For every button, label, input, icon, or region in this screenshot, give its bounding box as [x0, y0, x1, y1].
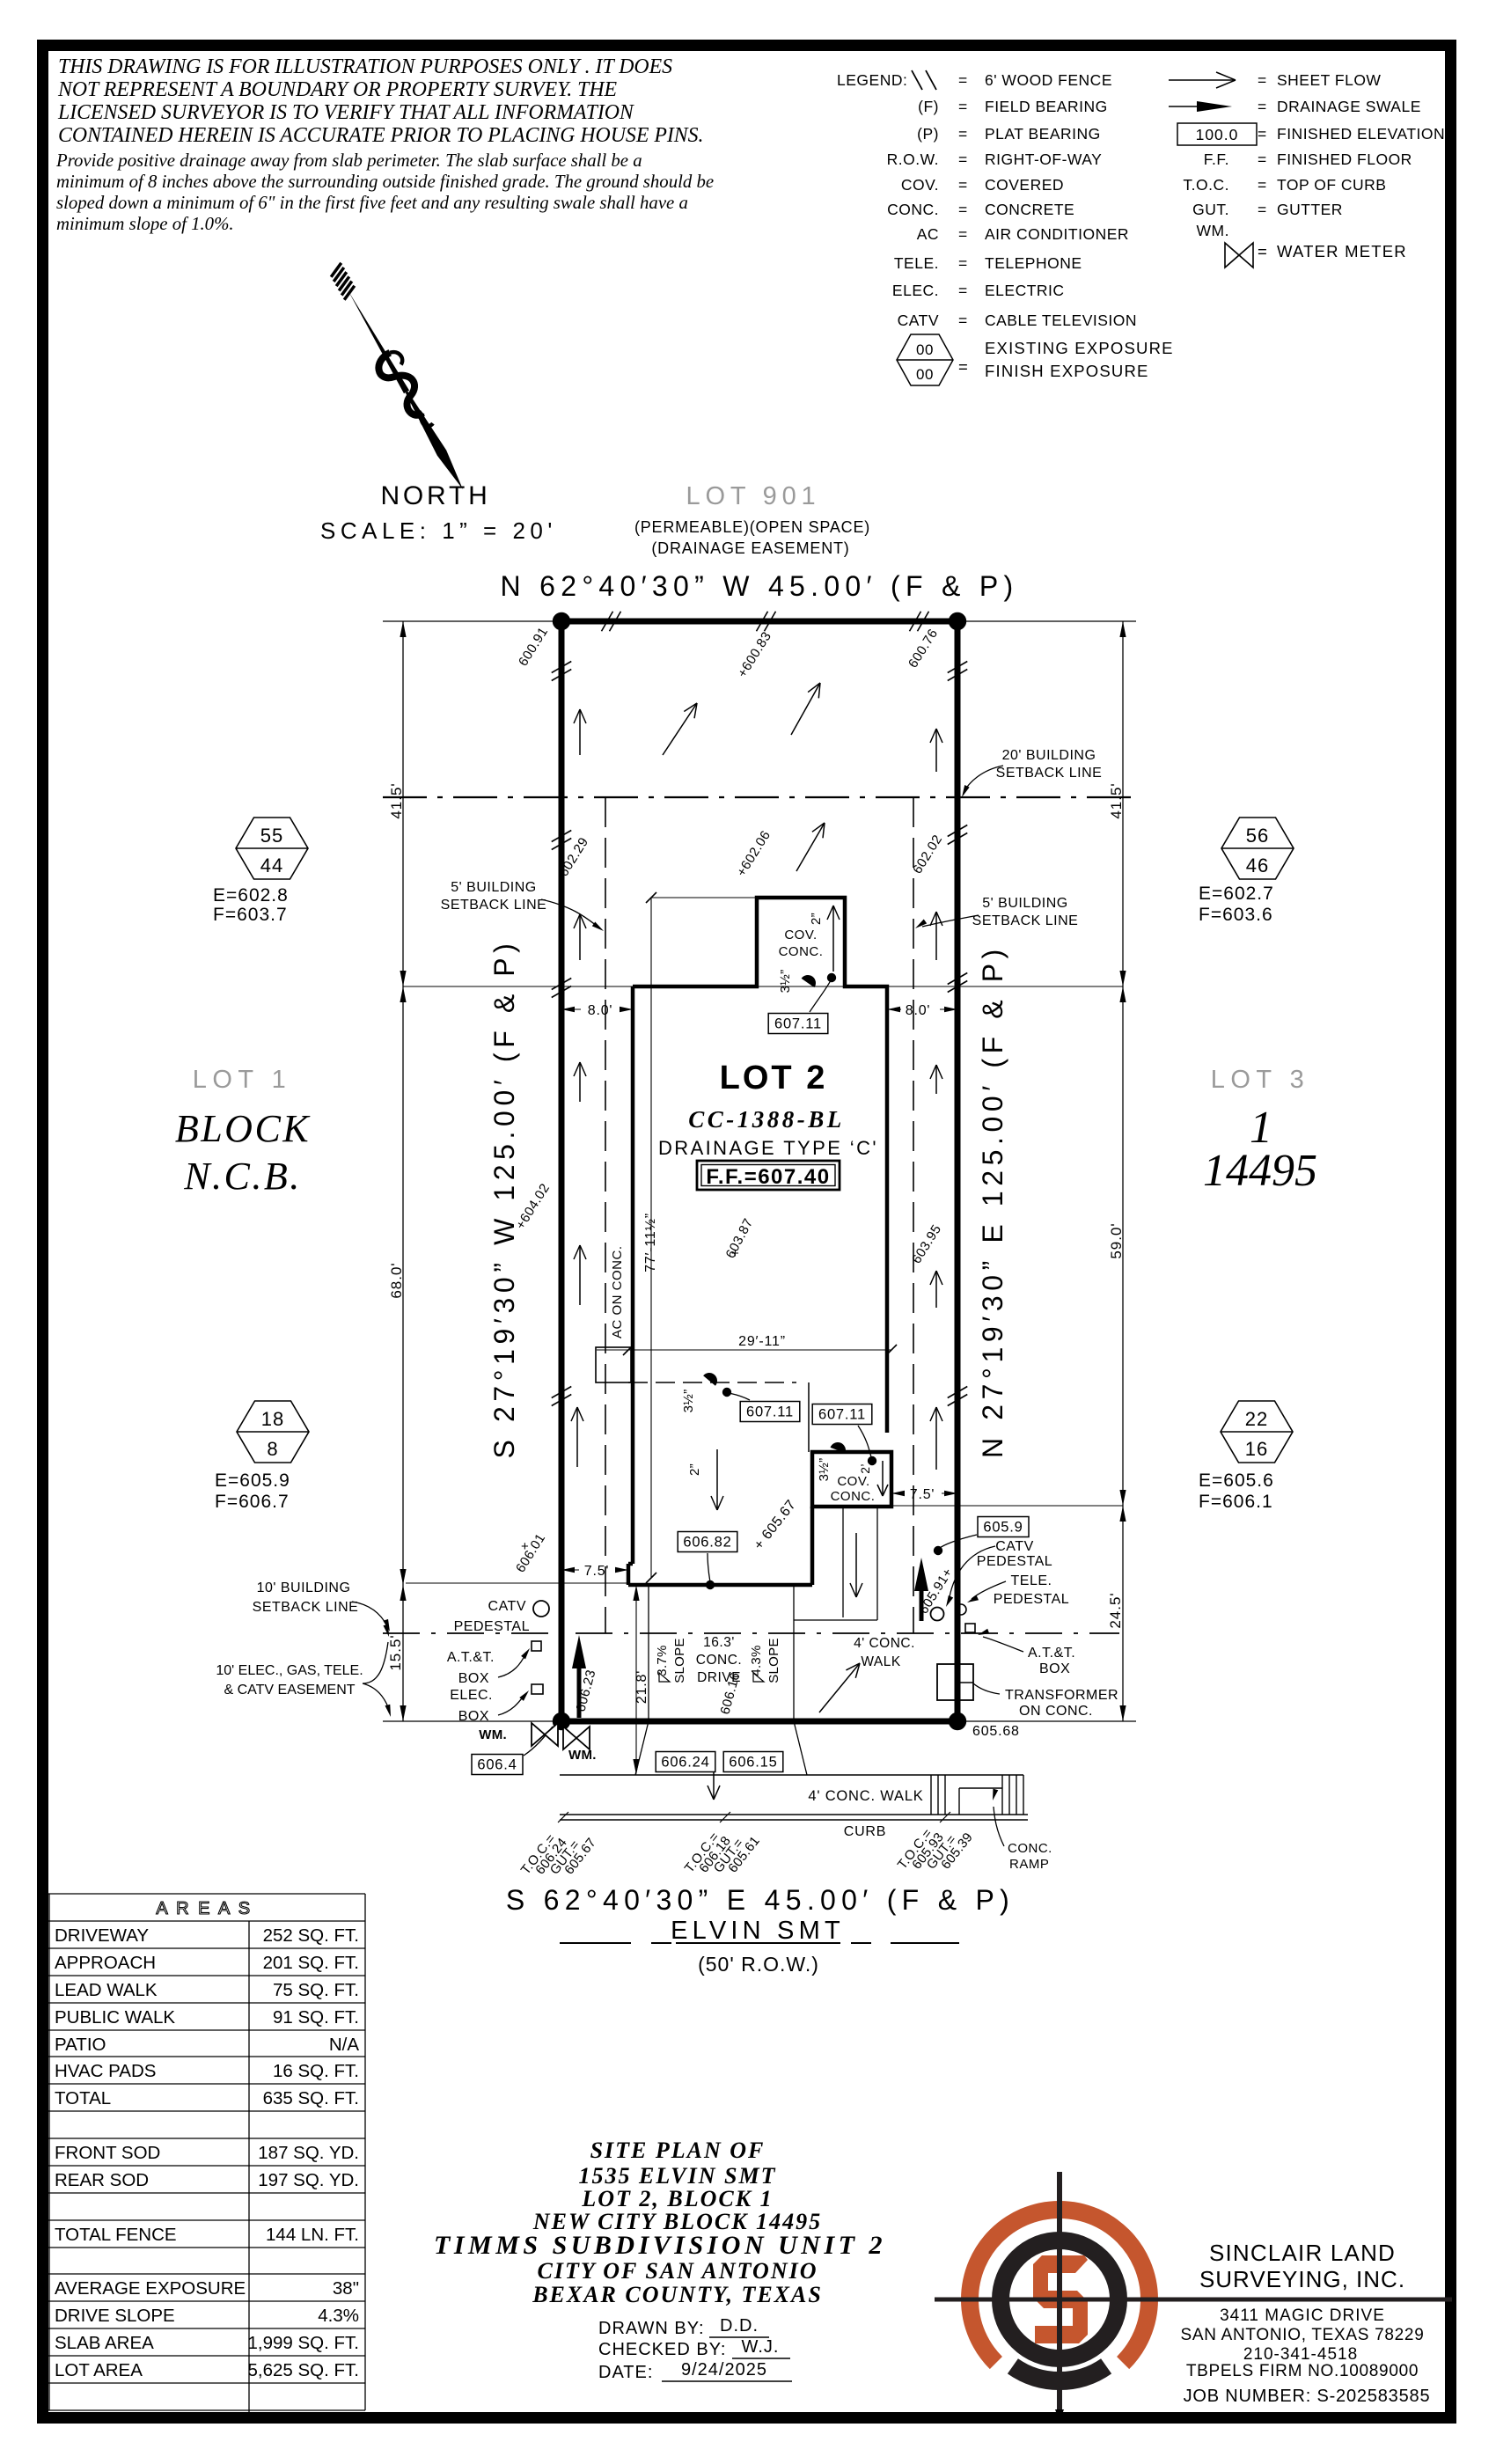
svg-text:100.0: 100.0 — [1196, 126, 1239, 143]
svg-text:41.5': 41.5' — [388, 782, 405, 818]
svg-text:CONC.: CONC. — [887, 201, 939, 218]
svg-text:S 27°19′30” W 125.00′ (F & P): S 27°19′30” W 125.00′ (F & P) — [488, 939, 520, 1459]
svg-text:14495: 14495 — [1203, 1146, 1317, 1196]
svg-text:9/24/2025: 9/24/2025 — [681, 2360, 767, 2380]
svg-text:BOX: BOX — [458, 1709, 489, 1724]
svg-text:GUT.: GUT. — [1192, 201, 1229, 218]
svg-text:(DRAINAGE EASEMENT): (DRAINAGE EASEMENT) — [651, 539, 849, 557]
svg-text:BOX: BOX — [458, 1671, 489, 1686]
svg-text:=: = — [1258, 176, 1266, 194]
svg-text:=: = — [1258, 150, 1266, 168]
svg-text:AC ON CONC.: AC ON CONC. — [610, 1245, 625, 1338]
svg-text:BOX: BOX — [1039, 1661, 1070, 1676]
svg-text:16.3': 16.3' — [703, 1635, 735, 1650]
svg-text:SLOPE: SLOPE — [766, 1638, 781, 1683]
svg-text:minimum slope of 1.0%.: minimum slope of 1.0%. — [56, 214, 234, 234]
svg-text:201 SQ. FT.: 201 SQ. FT. — [263, 1953, 359, 1973]
svg-text:=: = — [958, 125, 967, 143]
svg-text:CONC.: CONC. — [779, 944, 824, 959]
svg-text:=: = — [958, 282, 967, 299]
svg-text:sloped down a minimum of 6" in: sloped down a minimum of 6" in the first… — [56, 193, 688, 213]
svg-text:JOB NUMBER: S-202583585: JOB NUMBER: S-202583585 — [1184, 2387, 1431, 2406]
svg-text:8.0': 8.0' — [906, 1003, 931, 1018]
svg-text:=: = — [958, 312, 967, 329]
svg-text:COV.: COV. — [837, 1474, 869, 1489]
svg-text:COVERED: COVERED — [985, 176, 1064, 194]
svg-text:197 SQ. YD.: 197 SQ. YD. — [258, 2170, 359, 2190]
svg-text:SHEET FLOW: SHEET FLOW — [1277, 71, 1381, 89]
svg-text:=: = — [958, 201, 967, 218]
svg-text:TOTAL FENCE: TOTAL FENCE — [55, 2225, 177, 2245]
svg-text:607.11: 607.11 — [818, 1407, 866, 1423]
svg-text:SURVEYING, INC.: SURVEYING, INC. — [1199, 2266, 1405, 2292]
svg-text:21.8': 21.8' — [634, 1670, 649, 1704]
svg-text:605.68: 605.68 — [972, 1724, 1020, 1739]
svg-text:(F): (F) — [918, 98, 939, 115]
svg-text:TELE.: TELE. — [894, 254, 939, 272]
svg-text:3½”: 3½” — [681, 1390, 696, 1413]
svg-text:E=605.9: E=605.9 — [215, 1470, 290, 1491]
svg-text:CONTAINED HEREIN IS ACCURATE P: CONTAINED HEREIN IS ACCURATE PRIOR TO PL… — [58, 124, 704, 147]
svg-text:LEGEND:: LEGEND: — [837, 71, 907, 89]
svg-text:CONC.: CONC. — [1008, 1841, 1052, 1856]
svg-text:77′-11½”: 77′-11½” — [643, 1213, 658, 1272]
svg-text:CATV: CATV — [995, 1539, 1033, 1554]
svg-text:DRAINAGE SWALE: DRAINAGE SWALE — [1277, 98, 1421, 115]
svg-text:A.T.&T.: A.T.&T. — [1028, 1646, 1075, 1661]
svg-text:44: 44 — [260, 854, 283, 876]
svg-text:15.5': 15.5' — [387, 1634, 404, 1670]
svg-text:=: = — [1258, 201, 1266, 218]
svg-text:SITE PLAN OF: SITE PLAN OF — [590, 2138, 766, 2163]
svg-text:606.15: 606.15 — [729, 1755, 777, 1771]
svg-text:605.9: 605.9 — [983, 1520, 1023, 1536]
svg-text:DRAWN BY:: DRAWN BY: — [598, 2319, 705, 2338]
svg-text:=: = — [1258, 125, 1266, 143]
svg-text:DRIVE SLOPE: DRIVE SLOPE — [55, 2306, 175, 2326]
svg-text:144 LN. FT.: 144 LN. FT. — [266, 2225, 359, 2245]
svg-text:606.24: 606.24 — [661, 1755, 709, 1771]
svg-text:TOTAL: TOTAL — [55, 2088, 111, 2108]
svg-text:LOT 2: LOT 2 — [720, 1060, 828, 1096]
svg-text:HVAC PADS: HVAC PADS — [55, 2061, 156, 2081]
svg-text:BEXAR COUNTY, TEXAS: BEXAR COUNTY, TEXAS — [532, 2282, 823, 2307]
svg-text:WM.: WM. — [568, 1748, 597, 1763]
svg-text:5,625 SQ. FT.: 5,625 SQ. FT. — [248, 2360, 359, 2380]
svg-text:SETBACK LINE: SETBACK LINE — [972, 913, 1079, 928]
svg-text:NOT REPRESENT A BOUNDARY OR PR: NOT REPRESENT A BOUNDARY OR PROPERTY SUR… — [57, 78, 618, 101]
svg-text:ELECTRIC: ELECTRIC — [985, 282, 1065, 299]
svg-text:(50' R.O.W.): (50' R.O.W.) — [698, 1953, 819, 1976]
svg-text:N 62°40′30” W 45.00′ (F & P): N 62°40′30” W 45.00′ (F & P) — [501, 570, 1019, 602]
svg-text:FINISHED ELEVATION: FINISHED ELEVATION — [1277, 125, 1445, 143]
svg-text:68.0': 68.0' — [388, 1262, 405, 1298]
svg-text:WM.: WM. — [1197, 222, 1229, 239]
svg-text:TIMMS SUBDIVISION UNIT 2: TIMMS SUBDIVISION UNIT 2 — [434, 2231, 886, 2260]
svg-text:4.3%: 4.3% — [318, 2306, 359, 2326]
svg-text:TBPELS FIRM NO.10089000: TBPELS FIRM NO.10089000 — [1186, 2362, 1419, 2380]
svg-text:PUBLIC WALK: PUBLIC WALK — [55, 2007, 175, 2028]
svg-text:DATE:: DATE: — [598, 2363, 653, 2382]
svg-text:E=602.7: E=602.7 — [1199, 884, 1274, 904]
svg-text:WATER METER: WATER METER — [1277, 242, 1407, 260]
svg-text:6' WOOD FENCE: 6' WOOD FENCE — [985, 71, 1112, 89]
svg-text:SINCLAIR LAND: SINCLAIR LAND — [1209, 2240, 1396, 2266]
svg-text:2’: 2’ — [858, 1463, 872, 1474]
svg-text:4' CONC. WALK: 4' CONC. WALK — [808, 1788, 923, 1804]
svg-text:COV.: COV. — [901, 176, 939, 194]
svg-text:T.O.C.: T.O.C. — [1183, 176, 1229, 194]
svg-text:COV.: COV. — [784, 928, 817, 942]
svg-text:PEDESTAL: PEDESTAL — [977, 1554, 1052, 1569]
svg-text:7.5': 7.5' — [584, 1564, 610, 1579]
svg-text:TOP OF CURB: TOP OF CURB — [1277, 176, 1386, 194]
svg-text:+: + — [731, 1246, 739, 1261]
svg-text:CONCRETE: CONCRETE — [985, 201, 1074, 218]
svg-text:PEDESTAL: PEDESTAL — [454, 1619, 530, 1634]
svg-text:ON CONC.: ON CONC. — [1019, 1704, 1093, 1719]
svg-text:Provide positive drainage away: Provide positive drainage away from slab… — [55, 150, 642, 171]
svg-text:BLOCK: BLOCK — [175, 1107, 311, 1150]
svg-text:F.F.: F.F. — [1204, 150, 1229, 168]
svg-text:RIGHT-OF-WAY: RIGHT-OF-WAY — [985, 150, 1102, 168]
svg-text:5' BUILDING: 5' BUILDING — [982, 896, 1067, 911]
svg-text:=: = — [1258, 98, 1266, 115]
svg-text:8: 8 — [267, 1438, 278, 1460]
svg-text:ELEC.: ELEC. — [450, 1688, 493, 1703]
svg-text:=: = — [958, 225, 967, 243]
svg-text:+: + — [521, 1539, 529, 1554]
svg-text:ELEC.: ELEC. — [892, 282, 939, 299]
svg-text:607.11: 607.11 — [774, 1016, 822, 1032]
svg-text:SETBACK LINE: SETBACK LINE — [996, 766, 1103, 781]
svg-text:A R E A S: A R E A S — [156, 1899, 252, 1918]
svg-text:4.3%: 4.3% — [749, 1645, 764, 1676]
svg-text:91 SQ. FT.: 91 SQ. FT. — [273, 2007, 359, 2028]
svg-text:24.5': 24.5' — [1107, 1592, 1124, 1628]
svg-text:S 62°40′30” E 45.00′ (F & P): S 62°40′30” E 45.00′ (F & P) — [506, 1884, 1015, 1916]
svg-text:=: = — [958, 98, 967, 115]
svg-text:10' ELEC., GAS, TELE.: 10' ELEC., GAS, TELE. — [216, 1663, 363, 1678]
svg-text:=: = — [958, 254, 967, 272]
svg-text:CATV: CATV — [898, 312, 939, 329]
svg-text:3411 MAGIC DRIVE: 3411 MAGIC DRIVE — [1220, 2306, 1385, 2325]
svg-text:FRONT SOD: FRONT SOD — [55, 2143, 160, 2163]
svg-text:R.O.W.: R.O.W. — [887, 150, 939, 168]
svg-text:F=603.7: F=603.7 — [213, 905, 288, 925]
svg-text:AVERAGE EXPOSURE: AVERAGE EXPOSURE — [55, 2278, 246, 2299]
svg-text:252 SQ. FT.: 252 SQ. FT. — [263, 1925, 359, 1946]
svg-text:3½”: 3½” — [778, 970, 793, 994]
svg-text:RAMP: RAMP — [1009, 1857, 1049, 1872]
svg-text:N.C.B.: N.C.B. — [183, 1155, 302, 1198]
svg-text:CONC.: CONC. — [696, 1653, 742, 1668]
svg-text:DRIVEWAY: DRIVEWAY — [55, 1925, 149, 1946]
svg-text:16 SQ. FT.: 16 SQ. FT. — [273, 2061, 359, 2081]
svg-text:55: 55 — [260, 825, 283, 847]
svg-text:LOT 2, BLOCK 1: LOT 2, BLOCK 1 — [581, 2186, 773, 2211]
svg-text:DRIVE: DRIVE — [697, 1670, 741, 1685]
svg-text:& CATV EASEMENT: & CATV EASEMENT — [224, 1683, 355, 1698]
svg-text:SLOPE: SLOPE — [672, 1638, 687, 1683]
svg-text:59.0': 59.0' — [1108, 1222, 1125, 1258]
svg-text:(PERMEABLE)(OPEN SPACE): (PERMEABLE)(OPEN SPACE) — [634, 518, 870, 536]
svg-text:SCALE: 1” = 20': SCALE: 1” = 20' — [320, 517, 557, 544]
svg-text:TELE.: TELE. — [1011, 1573, 1052, 1588]
svg-text:607.11: 607.11 — [746, 1404, 794, 1420]
svg-text:TRANSFORMER: TRANSFORMER — [1005, 1688, 1118, 1703]
svg-text:=: = — [1258, 71, 1266, 89]
svg-text:E=605.6: E=605.6 — [1199, 1470, 1274, 1491]
svg-text:NORTH: NORTH — [380, 481, 490, 510]
svg-text:(P): (P) — [917, 125, 939, 143]
svg-text:PEDESTAL: PEDESTAL — [994, 1592, 1069, 1607]
svg-text:WM.: WM. — [479, 1727, 507, 1742]
svg-text:7.5': 7.5' — [910, 1487, 935, 1502]
svg-text:41.5': 41.5' — [1108, 782, 1125, 818]
svg-text:F.F.=607.40: F.F.=607.40 — [706, 1165, 830, 1189]
svg-text:38": 38" — [333, 2278, 359, 2299]
svg-text:AIR CONDITIONER: AIR CONDITIONER — [985, 225, 1129, 243]
svg-text:CITY OF SAN ANTONIO: CITY OF SAN ANTONIO — [538, 2258, 818, 2284]
svg-text:=: = — [1258, 242, 1267, 260]
svg-text:=: = — [958, 176, 967, 194]
svg-text:3½”: 3½” — [817, 1458, 832, 1482]
svg-text:PATIO: PATIO — [55, 2035, 106, 2055]
svg-text:WALK: WALK — [861, 1654, 901, 1669]
svg-text:PLAT BEARING: PLAT BEARING — [985, 125, 1101, 143]
svg-text:LOT 1: LOT 1 — [193, 1066, 292, 1094]
svg-text:CABLE TELEVISION: CABLE TELEVISION — [985, 312, 1137, 329]
svg-text:10' BUILDING: 10' BUILDING — [257, 1580, 351, 1595]
svg-text:SLAB AREA: SLAB AREA — [55, 2333, 154, 2353]
svg-text:FINISH EXPOSURE: FINISH EXPOSURE — [985, 362, 1149, 380]
svg-text:CONC.: CONC. — [831, 1489, 876, 1504]
svg-text:ELVIN SMT: ELVIN SMT — [671, 1917, 845, 1945]
svg-text:D.D.: D.D. — [720, 2316, 759, 2336]
svg-text:LEAD WALK: LEAD WALK — [55, 1980, 158, 2000]
svg-text:LOT 3: LOT 3 — [1211, 1066, 1310, 1094]
svg-text:EXISTING EXPOSURE: EXISTING EXPOSURE — [985, 339, 1174, 357]
svg-text:APPROACH: APPROACH — [55, 1953, 156, 1973]
svg-text:=: = — [958, 150, 967, 168]
svg-text:00: 00 — [916, 366, 934, 383]
svg-text:1,999 SQ. FT.: 1,999 SQ. FT. — [248, 2333, 359, 2353]
svg-text:minimum of 8 inches above the: minimum of 8 inches above the surroundin… — [56, 172, 714, 192]
svg-text:18: 18 — [261, 1408, 284, 1430]
svg-text:210-341-4518: 210-341-4518 — [1243, 2345, 1358, 2364]
svg-text:REAR SOD: REAR SOD — [55, 2170, 149, 2190]
svg-text:29′-11”: 29′-11” — [738, 1334, 786, 1349]
svg-text:GUTTER: GUTTER — [1277, 201, 1343, 218]
svg-text:1535 ELVIN SMT: 1535 ELVIN SMT — [579, 2163, 777, 2189]
svg-text:20' BUILDING: 20' BUILDING — [1002, 748, 1096, 763]
svg-text:F=606.7: F=606.7 — [215, 1492, 290, 1512]
svg-text:635 SQ. FT.: 635 SQ. FT. — [263, 2088, 359, 2108]
svg-text:CHECKED BY:: CHECKED BY: — [598, 2340, 726, 2359]
svg-text:LOT 901: LOT 901 — [686, 482, 821, 510]
svg-text:THIS DRAWING IS FOR ILLUSTRATI: THIS DRAWING IS FOR ILLUSTRATION PURPOSE… — [58, 55, 672, 78]
svg-text:N/A: N/A — [329, 2035, 360, 2055]
svg-text:N 27°19′30” E 125.00′ (F & P): N 27°19′30” E 125.00′ (F & P) — [977, 944, 1008, 1458]
svg-text:=: = — [958, 357, 968, 376]
svg-text:FIELD BEARING: FIELD BEARING — [985, 98, 1108, 115]
svg-text:2”: 2” — [687, 1463, 702, 1476]
svg-text:46: 46 — [1246, 854, 1269, 876]
svg-text:AC: AC — [917, 225, 939, 243]
svg-text:SETBACK LINE: SETBACK LINE — [253, 1600, 359, 1615]
svg-text:16: 16 — [1245, 1438, 1268, 1460]
svg-text:56: 56 — [1246, 825, 1269, 847]
svg-text:SAN ANTONIO, TEXAS 78229: SAN ANTONIO, TEXAS 78229 — [1181, 2326, 1425, 2344]
svg-text:F=603.6: F=603.6 — [1199, 905, 1273, 925]
svg-text:CURB: CURB — [844, 1824, 887, 1839]
svg-text:606.82: 606.82 — [683, 1535, 731, 1551]
svg-text:3.7%: 3.7% — [655, 1645, 670, 1676]
svg-text:LICENSED SURVEYOR IS TO VERIFY: LICENSED SURVEYOR IS TO VERIFY THAT ALL … — [57, 101, 634, 124]
svg-text:=: = — [958, 71, 967, 89]
svg-text:A.T.&T.: A.T.&T. — [447, 1650, 495, 1665]
svg-text:SETBACK LINE: SETBACK LINE — [441, 898, 547, 913]
svg-text:4' CONC.: 4' CONC. — [854, 1636, 915, 1651]
svg-text:CATV: CATV — [488, 1599, 526, 1614]
svg-text:F=606.1: F=606.1 — [1199, 1492, 1273, 1512]
svg-text:W.J.: W.J. — [742, 2337, 780, 2357]
svg-text:TELEPHONE: TELEPHONE — [985, 254, 1082, 272]
svg-text:LOT AREA: LOT AREA — [55, 2360, 143, 2380]
svg-text:CC-1388-BL: CC-1388-BL — [688, 1106, 845, 1133]
svg-text:00: 00 — [916, 341, 934, 358]
svg-text:5' BUILDING: 5' BUILDING — [451, 880, 536, 895]
svg-text:E=602.8: E=602.8 — [213, 885, 289, 906]
svg-text:22: 22 — [1245, 1408, 1268, 1430]
svg-text:606.4: 606.4 — [477, 1757, 517, 1773]
svg-text:187 SQ. YD.: 187 SQ. YD. — [258, 2143, 359, 2163]
svg-text:75 SQ. FT.: 75 SQ. FT. — [273, 1980, 359, 2000]
svg-text:2”: 2” — [809, 913, 824, 925]
svg-text:FINISHED FLOOR: FINISHED FLOOR — [1277, 150, 1412, 168]
svg-text:DRAINAGE TYPE ‘C': DRAINAGE TYPE ‘C' — [658, 1137, 878, 1159]
svg-text:8.0': 8.0' — [588, 1003, 613, 1018]
